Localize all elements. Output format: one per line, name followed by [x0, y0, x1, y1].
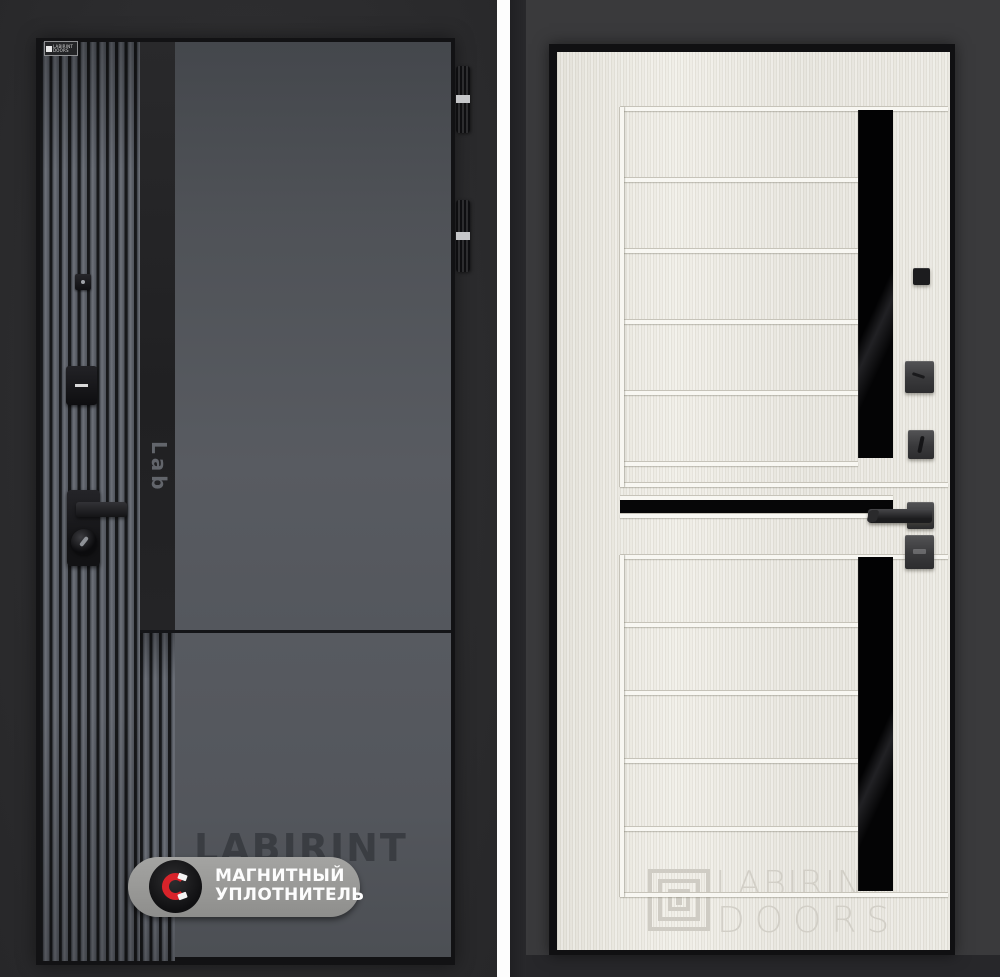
door-handle-lever	[868, 509, 932, 523]
groove	[620, 320, 858, 324]
groove	[620, 391, 858, 395]
lock-cylinder-keyhole-icon	[71, 529, 97, 555]
frame-outer-edge	[510, 0, 526, 977]
badge-label: МАГНИТНЫЙ УПЛОТНИТЕЛЬ	[215, 867, 365, 905]
groove	[620, 483, 948, 487]
groove	[620, 827, 858, 831]
magnet-icon	[162, 873, 189, 900]
glass-insert-top	[858, 110, 893, 458]
groove	[620, 893, 948, 897]
lock-knob-icon	[905, 361, 934, 393]
glass-insert-bottom	[858, 557, 893, 891]
thumbturn-icon	[908, 430, 934, 459]
front-door-photo: LABIRINT DOORS Lab LABIRINT МАГН	[0, 0, 497, 977]
peephole-cover-icon	[913, 268, 930, 285]
back-door-leaf: LABIRINT DOORS	[549, 44, 955, 955]
groove-vertical	[620, 107, 624, 487]
series-logo: Lab	[145, 412, 171, 522]
groove	[620, 691, 858, 695]
brand-plate: LABIRINT DOORS	[44, 41, 78, 56]
brand-plate-text: LABIRINT DOORS	[53, 45, 73, 53]
hinge-icon	[456, 66, 470, 133]
smooth-panel-top	[175, 42, 451, 630]
front-door-leaf: LABIRINT DOORS Lab LABIRINT МАГН	[36, 38, 455, 965]
labyrinth-logo-icon	[647, 868, 711, 932]
night-latch-switch	[66, 366, 97, 405]
product-image-two-door-sides: LABIRINT DOORS Lab LABIRINT МАГН	[0, 0, 1000, 977]
hinge-icon	[456, 200, 470, 272]
groove	[620, 107, 948, 111]
groove	[620, 514, 893, 518]
horizontal-glass-band	[620, 500, 893, 514]
groove	[620, 623, 858, 627]
groove	[620, 462, 858, 466]
frame-sill	[526, 955, 1000, 977]
groove	[620, 249, 858, 253]
door-handle-lever	[76, 502, 127, 517]
groove-vertical	[620, 555, 624, 897]
watermark-sub: DOORS	[717, 900, 899, 941]
black-accent-stripe	[140, 42, 175, 630]
brand-plate-logo-icon	[46, 46, 52, 52]
photo-divider	[497, 0, 510, 977]
groove	[620, 555, 948, 559]
groove	[620, 178, 858, 182]
magnetic-seal-badge: МАГНИТНЫЙ УПЛОТНИТЕЛЬ	[128, 857, 360, 917]
groove	[620, 759, 858, 763]
magnet-icon-circle	[149, 860, 202, 913]
key-escutcheon-icon	[905, 535, 934, 569]
back-door-photo: LABIRINT DOORS	[510, 0, 1000, 977]
cylinder-cover-icon	[75, 274, 91, 290]
